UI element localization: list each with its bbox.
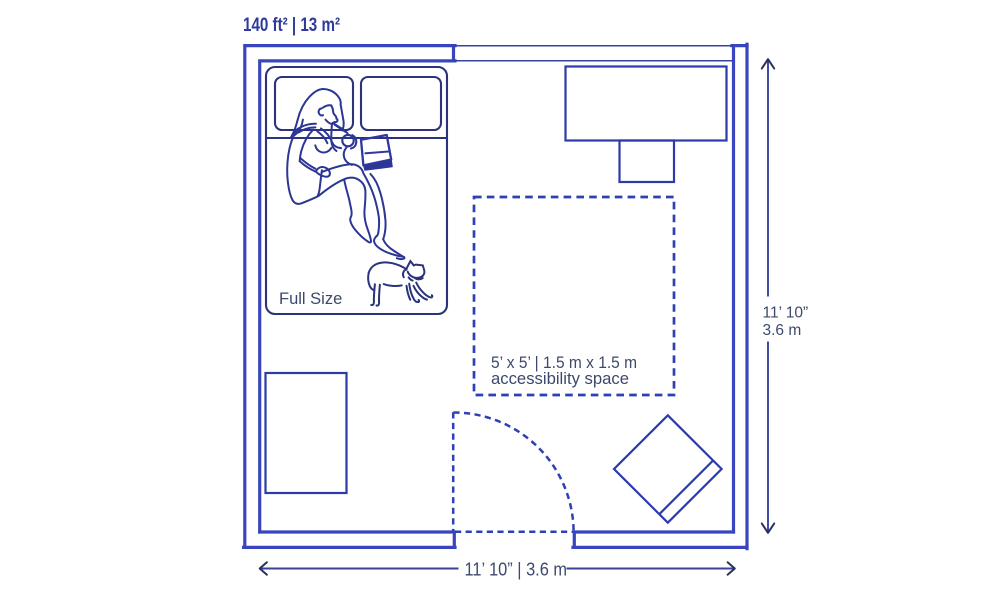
svg-text:Full Size: Full Size (279, 290, 342, 308)
svg-text:140 ft² | 13 m²: 140 ft² | 13 m² (243, 15, 340, 36)
svg-text:11’ 10”: 11’ 10” (763, 305, 809, 322)
svg-text:11’ 10” | 3.6 m: 11’ 10” | 3.6 m (465, 560, 568, 580)
svg-text:3.6 m: 3.6 m (763, 322, 802, 339)
svg-text:accessibility space: accessibility space (491, 369, 629, 388)
